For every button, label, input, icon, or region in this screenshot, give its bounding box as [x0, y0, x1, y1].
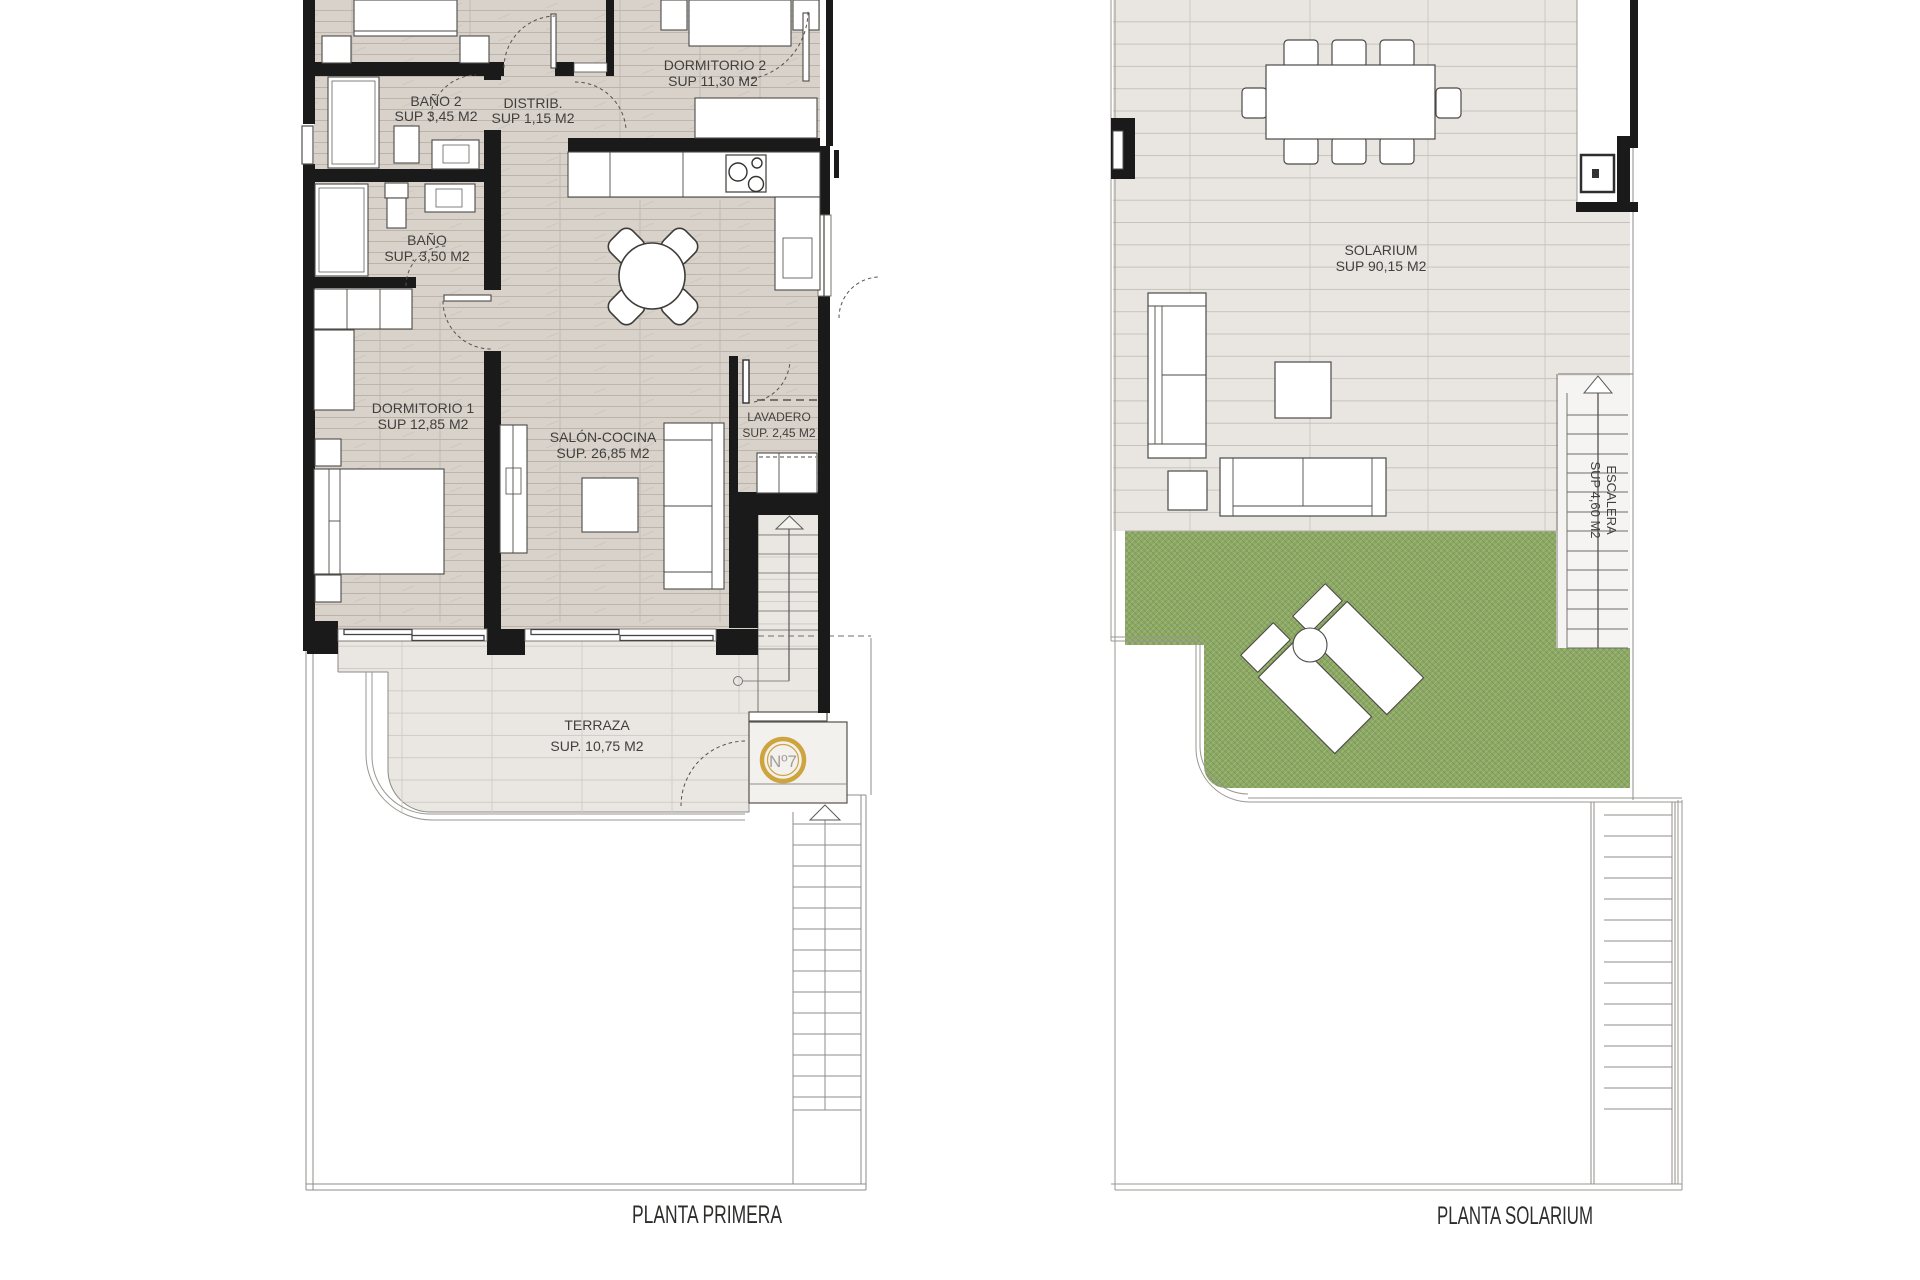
svg-text:SUP 11,30 M2: SUP 11,30 M2 — [668, 73, 758, 89]
svg-text:BAÑO 2: BAÑO 2 — [410, 93, 462, 109]
svg-text:SUP 90,15 M2: SUP 90,15 M2 — [1336, 258, 1427, 274]
svg-text:BAÑO: BAÑO — [407, 232, 447, 248]
svg-text:LAVADERO: LAVADERO — [747, 410, 811, 424]
svg-text:SUP 4,60 M2: SUP 4,60 M2 — [1588, 461, 1603, 538]
svg-text:TERRAZA: TERRAZA — [564, 717, 630, 733]
svg-text:ESCALERA: ESCALERA — [1604, 465, 1619, 535]
svg-text:Nº7: Nº7 — [769, 752, 797, 771]
svg-text:DORMITORIO 2: DORMITORIO 2 — [664, 57, 767, 73]
svg-text:PLANTA SOLARIUM: PLANTA SOLARIUM — [1437, 1202, 1593, 1230]
svg-text:SALÓN-COCINA: SALÓN-COCINA — [550, 429, 657, 445]
svg-text:DORMITORIO 1: DORMITORIO 1 — [372, 400, 475, 416]
svg-text:SUP 3,45 M2: SUP 3,45 M2 — [394, 108, 477, 124]
svg-text:SUP 1,15 M2: SUP 1,15 M2 — [491, 110, 574, 126]
svg-text:PLANTA PRIMERA: PLANTA PRIMERA — [632, 1201, 782, 1229]
svg-text:SUP. 2,45 M2: SUP. 2,45 M2 — [742, 426, 815, 440]
svg-text:SUP. 10,75 M2: SUP. 10,75 M2 — [550, 738, 643, 754]
svg-text:DISTRIB.: DISTRIB. — [503, 95, 562, 111]
svg-text:SUP. 3,50 M2: SUP. 3,50 M2 — [384, 248, 470, 264]
svg-text:SUP. 26,85 M2: SUP. 26,85 M2 — [556, 445, 649, 461]
svg-text:SUP 12,85 M2: SUP 12,85 M2 — [378, 416, 469, 432]
svg-text:SOLARIUM: SOLARIUM — [1344, 242, 1417, 258]
